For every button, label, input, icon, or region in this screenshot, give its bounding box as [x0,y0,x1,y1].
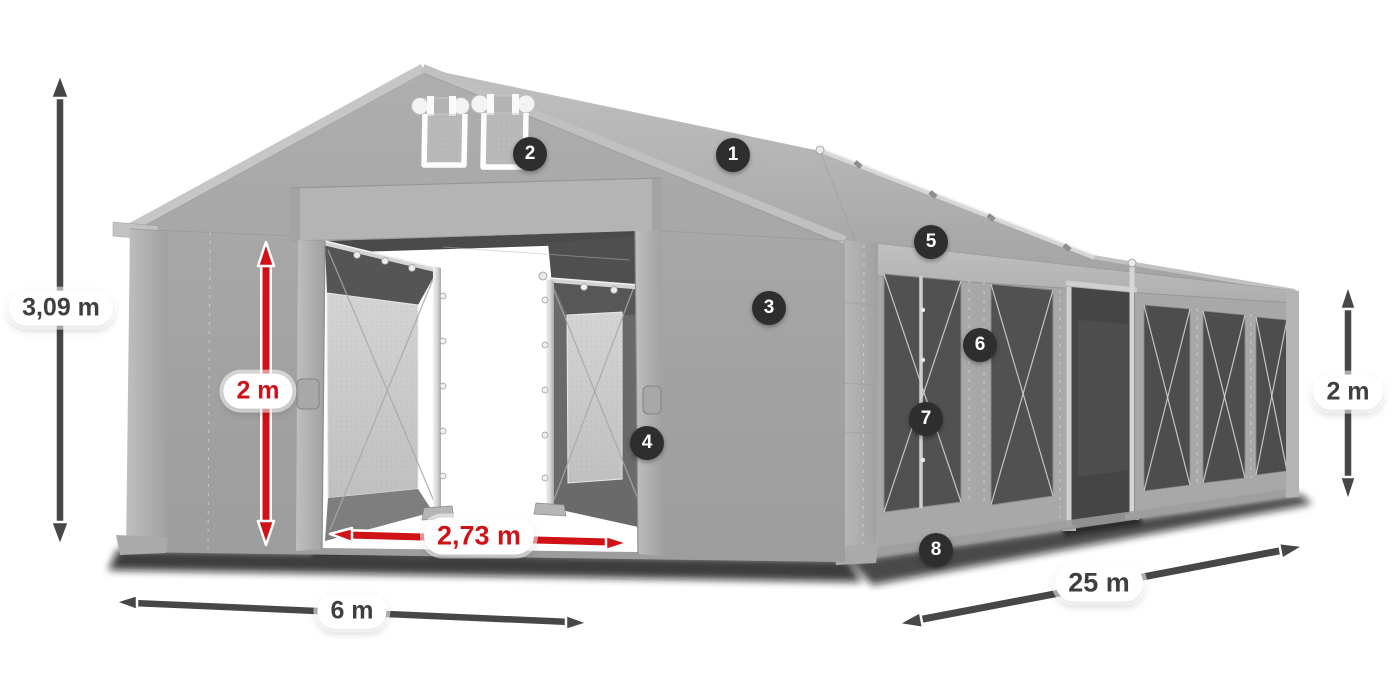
tent-dimension-diagram: 3,09 m 2 m 2,73 m 6 m 25 m 2 m 1 2 3 4 5… [0,0,1400,700]
door-panel-left [325,241,454,541]
callout-5-valance[interactable]: 5 [914,225,948,259]
door-jamb-left [296,240,325,551]
side-entrance-opening [1062,259,1139,531]
callout-4-door[interactable]: 4 [630,426,664,460]
callout-7-mesh[interactable]: 7 [909,402,943,436]
dim-side-length-label: 25 m [1055,564,1143,601]
tent-illustration [0,0,1400,700]
dim-front-width-label: 6 m [317,594,386,629]
door-pole [546,279,554,508]
door-header-beam [290,178,662,241]
callout-3-front-wall[interactable]: 3 [752,291,786,325]
door-jamb-right [635,230,663,556]
rear-corner-post [1286,289,1299,498]
left-edge-pillar [126,228,168,552]
callout-1-roof[interactable]: 1 [716,138,750,172]
dim-side-height-label: 2 m [1313,375,1382,410]
dim-door-height-label: 2 m [223,374,292,409]
front-door-opening [321,231,652,552]
callout-8-skirt[interactable]: 8 [919,533,953,567]
dim-total-height-label: 3,09 m [9,291,113,326]
door-panel-right [534,244,652,530]
dim-door-width-label: 2,73 m [424,517,534,554]
callout-6-window[interactable]: 6 [963,328,997,362]
callout-2-vent[interactable]: 2 [513,137,547,171]
